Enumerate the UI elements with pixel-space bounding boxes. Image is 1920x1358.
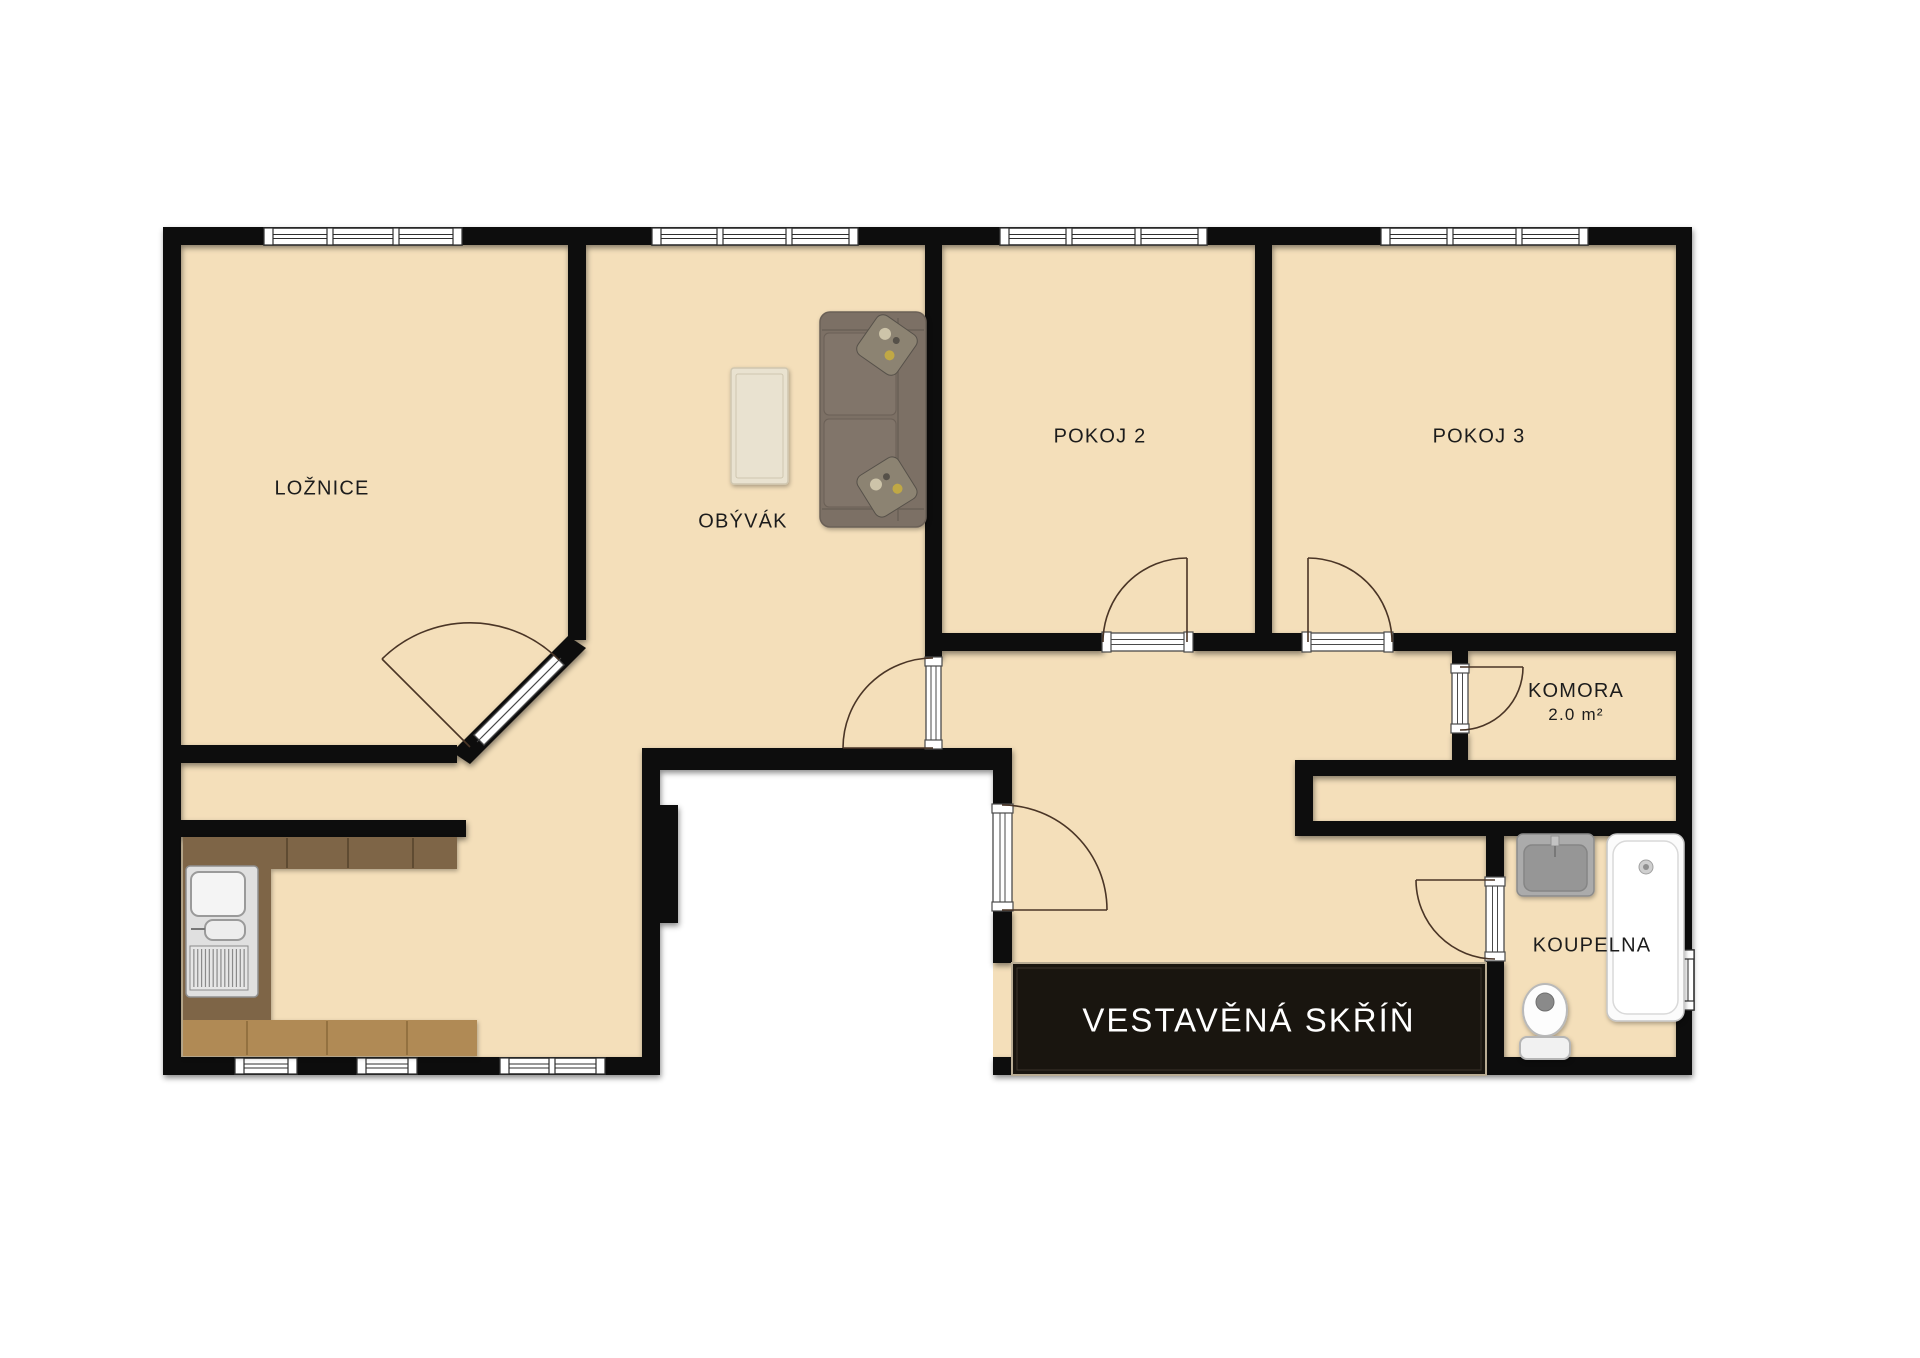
wall-duct-top bbox=[1295, 760, 1692, 776]
building-void bbox=[660, 770, 993, 1096]
door-obyvak-threshold bbox=[926, 658, 941, 748]
coffee-table bbox=[731, 368, 788, 484]
window-pokoj3-jamb bbox=[1381, 228, 1390, 245]
floor-plan-page: LOŽNICE OBÝVÁK POKOJ 2 POKOJ 3 KOMORA 2.… bbox=[0, 0, 1920, 1358]
door-komora-threshold bbox=[1452, 665, 1468, 732]
void-layer bbox=[660, 770, 993, 1096]
window-pokoj2-mullion bbox=[1135, 228, 1141, 245]
door-komora-jamb-cap bbox=[1451, 664, 1469, 673]
bathroom-sink-part bbox=[1551, 836, 1559, 846]
coffee-table-part bbox=[736, 374, 783, 478]
window-kitchen-1-jamb bbox=[235, 1058, 244, 1074]
kitchen-sink-unit-part bbox=[205, 920, 245, 940]
window-pokoj2-frame bbox=[1000, 228, 1207, 245]
wall-hall-top-3 bbox=[1272, 633, 1303, 651]
window-pokoj2-jamb bbox=[1000, 228, 1009, 245]
room-label-komora-area: 2.0 m² bbox=[1528, 704, 1624, 725]
bathtub-part bbox=[1643, 864, 1649, 870]
wall-koupelna-left-b bbox=[1486, 960, 1504, 1057]
window-loznice-mullion bbox=[393, 228, 399, 245]
room-label-loznice: LOŽNICE bbox=[274, 477, 369, 502]
window-obyvak-frame bbox=[652, 228, 858, 245]
door-pokoj2-threshold bbox=[1103, 633, 1192, 651]
window-obyvak-jamb bbox=[652, 228, 661, 245]
wall-hall-top-1 bbox=[942, 633, 1103, 651]
door-pokoj3-jamb-cap bbox=[1302, 632, 1311, 652]
window-kitchen-3-jamb bbox=[596, 1058, 605, 1074]
door-koupelna-threshold bbox=[1486, 878, 1504, 960]
kitchen-counter-part bbox=[183, 837, 457, 869]
window-pokoj3-mullion bbox=[1447, 228, 1453, 245]
window-kitchen-2-jamb bbox=[357, 1058, 366, 1074]
kitchen-counter-part bbox=[183, 1020, 477, 1056]
wardrobe-label: VESTAVĚNÁ SKŘÍŇ bbox=[1082, 999, 1415, 1040]
toilet-part bbox=[1536, 993, 1554, 1011]
window-loznice-jamb bbox=[453, 228, 462, 245]
toilet-part bbox=[1520, 1037, 1570, 1059]
wall-koupelna-left-a bbox=[1486, 836, 1504, 878]
bathroom-sink bbox=[1517, 834, 1594, 896]
wall-obyvak-pokoj2 bbox=[925, 245, 942, 658]
wall-hall-top-2 bbox=[1192, 633, 1255, 651]
bathtub bbox=[1607, 834, 1684, 1021]
window-pokoj2 bbox=[1000, 228, 1207, 245]
wall-void-top bbox=[642, 748, 1012, 770]
window-loznice-mullion bbox=[327, 228, 333, 245]
wall-void-right-b bbox=[993, 910, 1012, 963]
window-loznice-jamb bbox=[264, 228, 273, 245]
window-pokoj3-frame bbox=[1381, 228, 1588, 245]
wall-duct-left bbox=[1295, 760, 1313, 836]
toilet bbox=[1520, 984, 1570, 1059]
door-koupelna-jamb-cap bbox=[1485, 877, 1505, 886]
room-label-koupelna: KOUPELNA bbox=[1533, 934, 1652, 959]
window-kitchen-3-jamb bbox=[500, 1058, 509, 1074]
window-pokoj2-mullion bbox=[1066, 228, 1072, 245]
window-kitchen-1-jamb bbox=[288, 1058, 297, 1074]
door-pokoj2-jamb-cap bbox=[1184, 632, 1193, 652]
window-kitchen-3-mullion bbox=[549, 1058, 555, 1074]
window-pokoj3 bbox=[1381, 228, 1588, 245]
wall-komora-left-a bbox=[1452, 651, 1468, 665]
window-obyvak-mullion bbox=[786, 228, 792, 245]
room-label-komora: KOMORA 2.0 m² bbox=[1528, 679, 1624, 725]
window-obyvak bbox=[652, 228, 858, 245]
wall-kitchen-niche bbox=[181, 820, 466, 837]
window-obyvak-mullion bbox=[717, 228, 723, 245]
window-pokoj2-jamb bbox=[1198, 228, 1207, 245]
door-pokoj3-threshold bbox=[1303, 633, 1392, 651]
window-pokoj3-mullion bbox=[1516, 228, 1522, 245]
wall-pokoj2-pokoj3 bbox=[1255, 245, 1272, 651]
door-entrance-threshold bbox=[993, 805, 1012, 910]
room-label-pokoj2: POKOJ 2 bbox=[1054, 425, 1147, 450]
floor-plan-canvas bbox=[0, 0, 1920, 1358]
room-label-pokoj3: POKOJ 3 bbox=[1433, 425, 1526, 450]
wall-loznice-bottom bbox=[181, 745, 457, 763]
wall-komora-left-b bbox=[1452, 732, 1468, 762]
kitchen-sink-unit-part bbox=[190, 946, 248, 990]
window-pokoj3-jamb bbox=[1579, 228, 1588, 245]
window-kitchen-3 bbox=[500, 1058, 605, 1074]
window-kitchen-2-jamb bbox=[408, 1058, 417, 1074]
room-label-komora-name: KOMORA bbox=[1528, 680, 1624, 702]
door-komora-jamb-cap bbox=[1451, 724, 1469, 733]
wall-outer-left bbox=[163, 227, 181, 1075]
wall-loznice-right bbox=[568, 245, 586, 640]
window-loznice-frame bbox=[264, 228, 462, 245]
wall-hall-top-4 bbox=[1392, 633, 1692, 651]
window-kitchen-1 bbox=[235, 1058, 297, 1074]
window-obyvak-jamb bbox=[849, 228, 858, 245]
kitchen-sink-unit bbox=[186, 866, 258, 997]
window-loznice bbox=[264, 228, 462, 245]
sofa bbox=[820, 312, 926, 527]
room-label-obyvak: OBÝVÁK bbox=[698, 510, 787, 535]
wall-void-right-a bbox=[993, 770, 1012, 805]
kitchen-sink-unit-part bbox=[191, 872, 245, 916]
window-kitchen-2 bbox=[357, 1058, 417, 1074]
